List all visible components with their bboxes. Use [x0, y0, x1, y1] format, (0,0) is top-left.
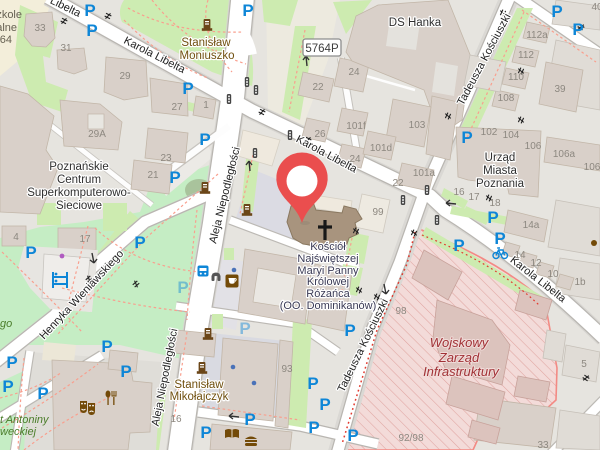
svg-text:103: 103	[409, 120, 426, 131]
svg-text:10: 10	[547, 269, 559, 280]
svg-text:P: P	[494, 229, 505, 248]
svg-text:16: 16	[453, 187, 465, 198]
svg-text:P: P	[182, 79, 193, 98]
svg-text:P: P	[84, 1, 95, 20]
svg-text:14: 14	[514, 250, 526, 261]
svg-text:17: 17	[468, 192, 480, 203]
svg-text:Zarząd: Zarząd	[438, 350, 480, 365]
svg-text:101d: 101d	[370, 143, 392, 154]
svg-text:P: P	[134, 233, 145, 252]
svg-text:Superkomputerowo-: Superkomputerowo-	[27, 187, 131, 199]
svg-text:P: P	[239, 319, 250, 338]
svg-text:P: P	[2, 377, 13, 396]
svg-text:112: 112	[518, 50, 534, 61]
svg-text:P: P	[453, 236, 464, 255]
svg-text:Poznania: Poznania	[476, 178, 525, 190]
svg-text:Urząd: Urząd	[485, 152, 516, 164]
svg-text:DS Hanka: DS Hanka	[389, 17, 442, 29]
svg-text:P: P	[461, 128, 472, 147]
svg-text:alne: alne	[0, 22, 17, 34]
svg-text:22: 22	[312, 82, 324, 93]
svg-text:t Antoniny: t Antoniny	[0, 414, 50, 426]
svg-text:P: P	[319, 395, 330, 414]
svg-text:92/98: 92/98	[398, 433, 423, 444]
svg-text:go: go	[0, 318, 12, 330]
svg-text:1: 1	[203, 100, 209, 111]
svg-text:weckiej: weckiej	[0, 426, 37, 438]
svg-text:33: 33	[34, 23, 46, 34]
svg-text:16: 16	[170, 414, 182, 425]
svg-text:P: P	[307, 374, 318, 393]
svg-text:P: P	[199, 130, 210, 149]
svg-text:P: P	[308, 418, 319, 437]
svg-text:(OO. Dominikanów): (OO. Dominikanów)	[280, 300, 377, 312]
svg-text:4: 4	[13, 232, 19, 243]
svg-text:21: 21	[147, 170, 159, 181]
svg-text:106: 106	[525, 141, 542, 152]
svg-text:101a: 101a	[413, 168, 436, 179]
svg-text:33: 33	[537, 440, 549, 450]
svg-text:P: P	[344, 321, 355, 340]
svg-text:P: P	[347, 426, 358, 445]
svg-text:P: P	[200, 423, 211, 442]
svg-text:Infrastruktury: Infrastruktury	[423, 364, 500, 379]
svg-text:106a: 106a	[553, 149, 576, 160]
svg-text:1b: 1b	[574, 277, 586, 288]
svg-text:Królowej: Królowej	[307, 276, 349, 288]
svg-text:27: 27	[171, 102, 183, 113]
svg-text:P: P	[487, 208, 498, 227]
svg-text:104: 104	[503, 130, 520, 141]
svg-text:18: 18	[489, 198, 501, 209]
svg-text:26: 26	[314, 129, 326, 140]
svg-text:P: P	[242, 1, 253, 20]
svg-text:64: 64	[0, 34, 12, 46]
svg-text:31: 31	[60, 43, 72, 54]
svg-text:P: P	[25, 243, 36, 262]
svg-text:24: 24	[348, 67, 360, 78]
svg-text:Stanisław: Stanisław	[174, 379, 224, 391]
svg-text:106: 106	[584, 162, 600, 173]
svg-text:40: 40	[591, 2, 600, 13]
svg-text:P: P	[6, 353, 17, 372]
svg-text:Najświętszej: Najświętszej	[297, 253, 358, 265]
svg-text:23: 23	[160, 153, 172, 164]
svg-text:112a: 112a	[526, 30, 548, 41]
svg-text:22: 22	[392, 178, 404, 189]
svg-text:Kościół: Kościół	[310, 241, 346, 253]
svg-text:P: P	[37, 384, 48, 403]
svg-text:P: P	[177, 278, 188, 297]
svg-text:P: P	[86, 21, 97, 40]
svg-text:5: 5	[581, 359, 587, 370]
svg-text:Mikołajczyk: Mikołajczyk	[170, 391, 229, 403]
svg-text:98: 98	[395, 306, 407, 317]
svg-text:P: P	[551, 2, 562, 21]
svg-text:101f: 101f	[346, 121, 366, 132]
svg-text:Sieciowe: Sieciowe	[56, 200, 102, 212]
svg-text:Poznańskie: Poznańskie	[49, 161, 108, 173]
svg-text:99: 99	[372, 207, 384, 218]
svg-text:14a: 14a	[523, 220, 540, 231]
svg-text:P: P	[169, 168, 180, 187]
svg-text:29: 29	[119, 71, 131, 82]
svg-text:Miasta: Miasta	[483, 165, 517, 177]
svg-text:5764P: 5764P	[305, 43, 339, 55]
svg-text:P: P	[244, 410, 255, 429]
svg-text:Różańca: Różańca	[306, 288, 350, 300]
svg-text:102: 102	[481, 127, 498, 138]
svg-text:24: 24	[349, 154, 361, 165]
svg-text:zkole: zkole	[0, 9, 22, 21]
svg-text:P: P	[101, 337, 112, 356]
svg-text:Wojskowy: Wojskowy	[430, 335, 490, 350]
svg-text:110: 110	[508, 72, 524, 83]
svg-text:93: 93	[281, 364, 293, 375]
svg-text:P: P	[572, 20, 583, 39]
svg-text:108: 108	[498, 93, 515, 104]
svg-text:Centrum: Centrum	[57, 174, 101, 186]
svg-text:P: P	[120, 362, 131, 381]
svg-text:Stanisław: Stanisław	[181, 37, 231, 49]
svg-text:29A: 29A	[88, 129, 106, 140]
svg-text:Moniuszko: Moniuszko	[180, 50, 235, 62]
svg-text:17: 17	[79, 234, 91, 245]
svg-text:12: 12	[530, 258, 542, 269]
svg-text:39: 39	[554, 84, 566, 95]
